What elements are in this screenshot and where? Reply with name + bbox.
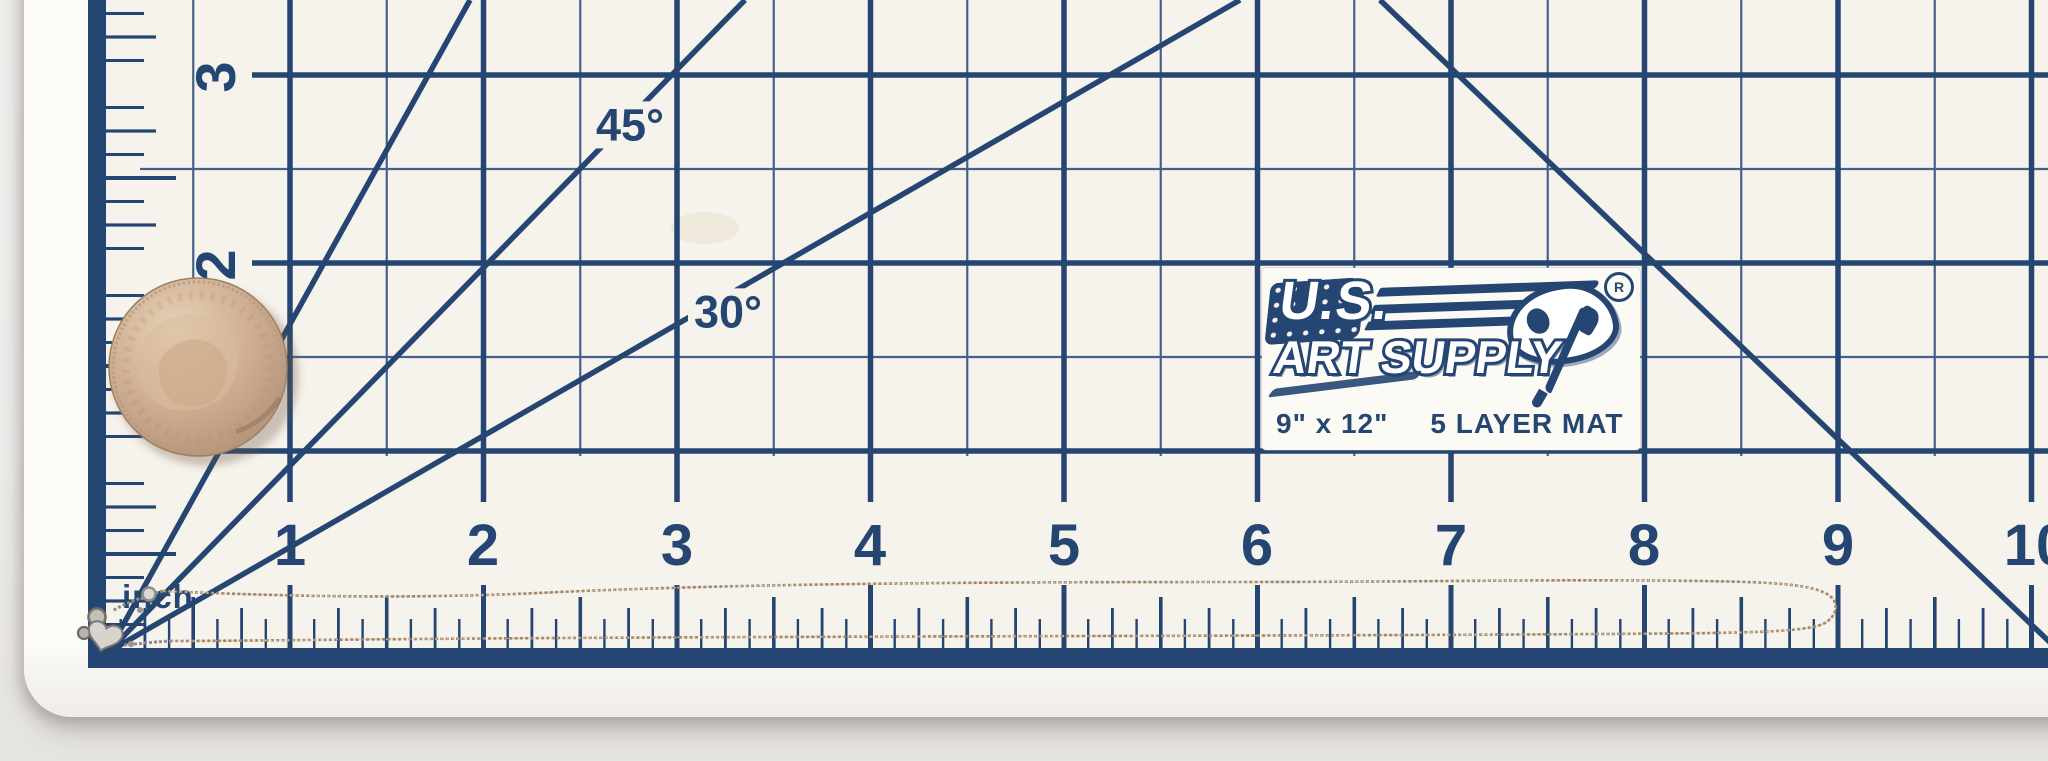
inch-label: inch <box>122 578 194 615</box>
mat-left-border <box>88 0 106 668</box>
clasp-spring-ring-icon <box>143 588 156 601</box>
mat-bottom-border <box>88 648 2048 668</box>
photo-cutting-mat: inch 1 2 3 4 5 6 7 8 9 10 3 2 45° 30° U.… <box>0 0 2048 761</box>
cutting-mat-grid: inch <box>0 0 2048 761</box>
